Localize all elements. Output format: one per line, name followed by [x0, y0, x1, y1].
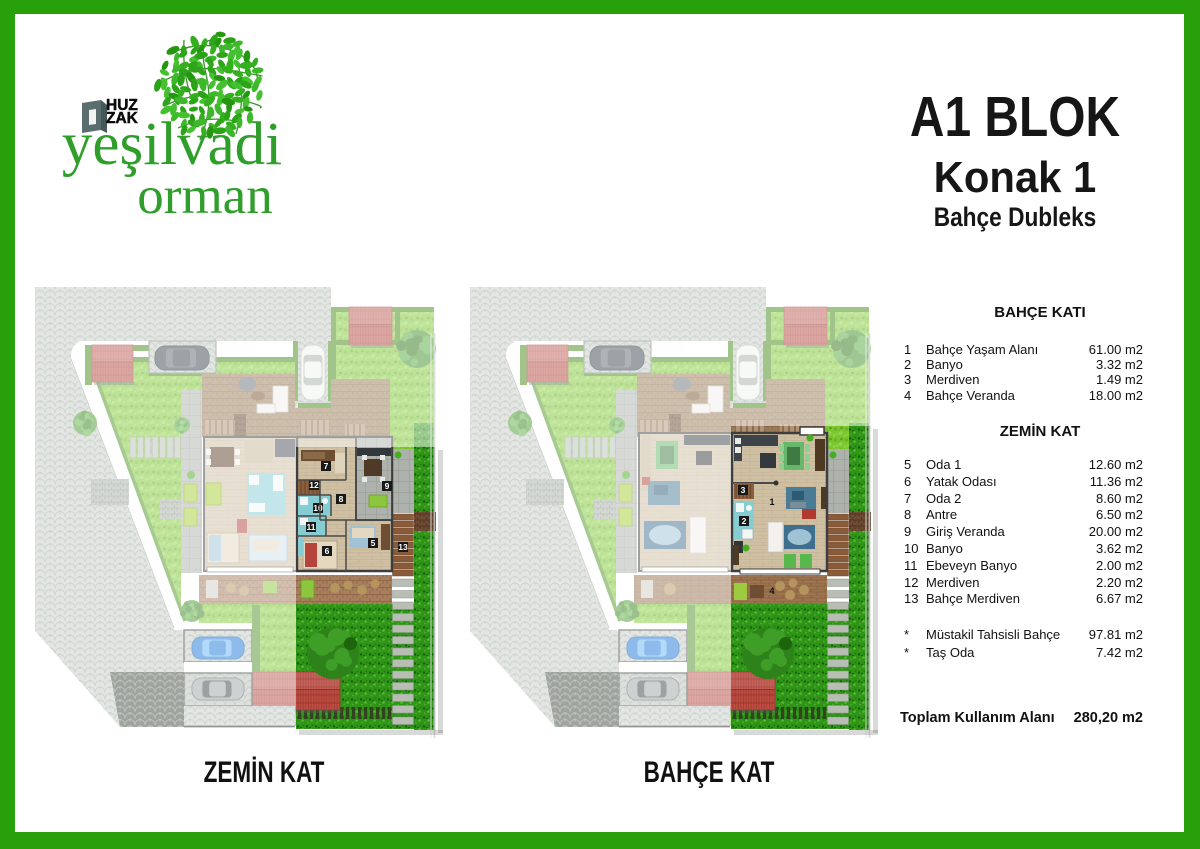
svg-text:9: 9 [385, 481, 390, 491]
svg-text:6: 6 [325, 546, 330, 556]
svg-text:11: 11 [307, 522, 316, 532]
svg-text:8: 8 [339, 494, 344, 504]
svg-text:4: 4 [769, 586, 774, 596]
svg-text:5: 5 [371, 538, 376, 548]
svg-text:12: 12 [309, 480, 319, 490]
svg-text:3: 3 [741, 485, 746, 495]
svg-text:13: 13 [398, 542, 408, 552]
svg-text:10: 10 [313, 503, 323, 513]
svg-text:2: 2 [742, 516, 747, 526]
svg-text:1: 1 [769, 497, 774, 507]
svg-text:7: 7 [324, 461, 329, 471]
